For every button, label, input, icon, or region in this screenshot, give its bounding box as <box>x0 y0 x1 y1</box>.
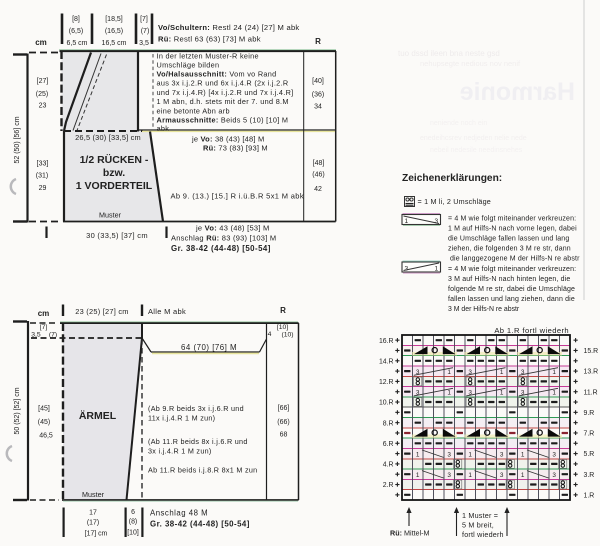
svg-text:[7]: [7] <box>140 16 148 23</box>
svg-text:Gr. 38-42 (44-48) [50-54]: Gr. 38-42 (44-48) [50-54] <box>150 520 250 529</box>
svg-text:(17): (17) <box>87 520 99 527</box>
svg-text:4: 4 <box>268 331 272 338</box>
svg-text:3: 3 <box>434 218 438 225</box>
svg-text:64 (70) [76] M: 64 (70) [76] M <box>181 343 237 352</box>
svg-text:12.R: 12.R <box>379 379 394 386</box>
svg-text:16,5 cm: 16,5 cm <box>102 40 127 47</box>
svg-text:3.R: 3.R <box>584 472 595 479</box>
svg-text:ziehen, die folgenden 3 M re s: ziehen, die folgenden 3 M re str, dann <box>448 246 571 253</box>
svg-text:(7): (7) <box>49 332 57 339</box>
svg-text:(6,5): (6,5) <box>69 28 83 35</box>
svg-text:(Ab 11.R beids 8x i.j.6.R und: (Ab 11.R beids 8x i.j.6.R und <box>148 437 248 446</box>
svg-text:= 4 M wie folgt miteinander ve: = 4 M wie folgt miteinander verkreuzen: <box>448 266 576 273</box>
svg-text:= 1 M li, 2 Umschläge: = 1 M li, 2 Umschläge <box>418 197 492 206</box>
svg-text:je Vo: 38 (43) [48] M: je Vo: 38 (43) [48] M <box>191 135 264 144</box>
svg-text:Rü: 73 (83) [93] M: Rü: 73 (83) [93] M <box>203 144 268 153</box>
svg-text:1: 1 <box>404 218 408 225</box>
svg-text:1: 1 <box>500 369 504 376</box>
svg-text:Muster: Muster <box>82 490 105 499</box>
svg-text:Umschläge bilden: Umschläge bilden <box>157 61 220 70</box>
svg-text:nebeil nedesile needinsnehes: nebeil nedesile needinsnehes <box>430 147 523 154</box>
svg-text:1 M auf Hilfs-N nach vorne leg: 1 M auf Hilfs-N nach vorne legen, dabei <box>448 226 577 233</box>
svg-text:6,5 cm: 6,5 cm <box>66 40 87 47</box>
svg-text:23 (25) [27] cm: 23 (25) [27] cm <box>75 307 128 316</box>
svg-text:aus 3x i.j.2.R und 6x i.j.4.R: aus 3x i.j.2.R und 6x i.j.4.R (2x i.j.2.… <box>157 79 289 88</box>
svg-text:(66): (66) <box>277 419 289 426</box>
svg-text:(8): (8) <box>129 519 137 526</box>
svg-text:3 M auf Hilfs-N nach hinten le: 3 M auf Hilfs-N nach hinten legen, die <box>448 276 570 283</box>
svg-text:2.R: 2.R <box>383 482 394 489</box>
svg-text:fortl wiederh: fortl wiederh <box>462 530 504 539</box>
svg-text:4.R: 4.R <box>383 462 394 469</box>
svg-text:1 VORDERTEIL: 1 VORDERTEIL <box>76 180 153 192</box>
svg-text:68: 68 <box>280 432 288 439</box>
svg-text:1: 1 <box>468 451 472 458</box>
svg-text:1: 1 <box>552 390 556 397</box>
svg-text:6.R: 6.R <box>383 441 394 448</box>
svg-text:[8]: [8] <box>72 16 80 23</box>
svg-text:3: 3 <box>404 265 408 272</box>
svg-text:[45]: [45] <box>38 406 50 413</box>
svg-text:3: 3 <box>552 472 556 479</box>
svg-text:Rü: Mittel-M: Rü: Mittel-M <box>390 529 430 538</box>
svg-text:Anschlag 48 M: Anschlag 48 M <box>150 509 208 518</box>
svg-text:In der letzten Muster-R keine: In der letzten Muster-R keine <box>157 52 259 61</box>
svg-text:[17] cm: [17] cm <box>85 531 108 538</box>
svg-text:1: 1 <box>521 472 525 479</box>
svg-text:Anschlag Rü: 83 (93) [103] M: Anschlag Rü: 83 (93) [103] M <box>171 233 276 242</box>
svg-text:und 7x i.j.4.R) [4x i.j.2.R un: und 7x i.j.4.R) [4x i.j.2.R und 7x i.j.4… <box>157 88 294 97</box>
svg-text:(Ab 9.R beids 3x i.j.6.R und: (Ab 9.R beids 3x i.j.6.R und <box>148 404 244 413</box>
svg-text:17: 17 <box>89 510 97 517</box>
svg-text:42: 42 <box>314 186 322 193</box>
svg-text:34: 34 <box>314 104 322 111</box>
svg-text:3: 3 <box>500 472 504 479</box>
svg-text:ÄRMEL: ÄRMEL <box>79 409 117 422</box>
svg-text:23: 23 <box>39 103 47 110</box>
svg-text:10.R: 10.R <box>379 400 394 407</box>
svg-text:11.R: 11.R <box>584 389 598 396</box>
svg-text:(16,5): (16,5) <box>105 28 123 35</box>
svg-text:die langgezogene M der Hilfs-N: die langgezogene M der Hilfs-N re abstr <box>450 256 580 263</box>
svg-text:1: 1 <box>521 451 525 458</box>
svg-text:1: 1 <box>447 369 451 376</box>
svg-text:3,5: 3,5 <box>31 332 41 339</box>
svg-text:Muster: Muster <box>99 211 122 220</box>
svg-text:1 Muster =: 1 Muster = <box>462 511 498 520</box>
svg-text:3: 3 <box>447 472 451 479</box>
svg-text:(7): (7) <box>141 28 150 35</box>
svg-text:(25): (25) <box>36 91 48 98</box>
svg-text:3x i.j.4.R 1 M zun): 3x i.j.4.R 1 M zun) <box>148 447 212 456</box>
svg-text:13.R: 13.R <box>584 369 599 376</box>
svg-text:[48]: [48] <box>313 160 325 167</box>
svg-text:1: 1 <box>416 451 420 458</box>
svg-text:Ab 9. (13.) [15.] R i.ü.B.R 5x: Ab 9. (13.) [15.] R i.ü.B.R 5x1 M abk <box>171 192 304 201</box>
svg-text:3: 3 <box>500 451 504 458</box>
svg-text:nehupsegte nedious nov nenif: nehupsegte nedious nov nenif <box>420 59 521 68</box>
svg-text:[66]: [66] <box>278 405 290 412</box>
svg-text:(10): (10) <box>281 332 293 339</box>
svg-text:cm: cm <box>38 309 50 318</box>
svg-text:= 4 M wie folgt miteinander ve: = 4 M wie folgt miteinander verkreuzen: <box>448 216 576 223</box>
svg-text:1: 1 <box>447 390 451 397</box>
svg-text:bzw.: bzw. <box>103 167 125 179</box>
svg-text:3,5: 3,5 <box>139 40 149 47</box>
svg-text:16.R: 16.R <box>379 338 394 345</box>
svg-text:5 M breit,: 5 M breit, <box>462 521 494 530</box>
svg-text:[10]: [10] <box>277 324 288 331</box>
svg-text:1.R: 1.R <box>584 492 595 499</box>
svg-text:die Umschläge fallen lassen un: die Umschläge fallen lassen und lang <box>448 236 569 243</box>
svg-text:[10]: [10] <box>127 530 139 537</box>
svg-text:3: 3 <box>447 451 451 458</box>
svg-text:Rü: Restl 63 (63) [73] M abk: Rü: Restl 63 (63) [73] M abk <box>158 35 261 44</box>
svg-text:Armausschnitte: Beids 5 (10) [: Armausschnitte: Beids 5 (10) [10] M <box>157 116 289 125</box>
svg-text:neniende noch ein: neniende noch ein <box>430 120 487 127</box>
svg-text:enedeihcsrev nedjeden nelie ne: enedeihcsrev nedjeden nelie nede <box>420 135 527 142</box>
svg-text:Ab 1.R fortl wiederh: Ab 1.R fortl wiederh <box>494 326 569 335</box>
svg-text:[27]: [27] <box>37 78 49 85</box>
svg-text:29: 29 <box>39 185 47 192</box>
svg-text:Harmonie: Harmonie <box>460 78 575 106</box>
svg-text:50 (52) [52] cm: 50 (52) [52] cm <box>14 387 21 434</box>
svg-text:1: 1 <box>468 472 472 479</box>
svg-text:eine betonte Abn arb: eine betonte Abn arb <box>157 106 230 115</box>
svg-text:14.R: 14.R <box>379 358 394 365</box>
svg-text:30 (33,5) [37] cm: 30 (33,5) [37] cm <box>86 231 148 240</box>
svg-text:8.R: 8.R <box>383 420 394 427</box>
svg-text:Vo/Schultern: Restl 24 (24) [2: Vo/Schultern: Restl 24 (24) [27] M abk <box>158 23 299 32</box>
svg-text:1: 1 <box>500 390 504 397</box>
svg-text:(46): (46) <box>312 172 324 179</box>
svg-text:3 M der Hilfs-N re abstr: 3 M der Hilfs-N re abstr <box>448 306 520 313</box>
svg-text:folgende M re str, dabei die U: folgende M re str, dabei die Umschläge <box>448 286 575 293</box>
svg-text:[7]: [7] <box>40 324 48 331</box>
svg-text:1 M abn, d.h. stets mit der 7.: 1 M abn, d.h. stets mit der 7. und 8.M <box>157 97 289 106</box>
svg-text:(45): (45) <box>38 419 50 426</box>
svg-text:11x i.j.4.R 1 M zun): 11x i.j.4.R 1 M zun) <box>148 414 215 423</box>
svg-text:1: 1 <box>552 369 556 376</box>
svg-text:Vo/Halsausschnitt: Vom vo Rand: Vo/Halsausschnitt: Vom vo Rand <box>157 70 277 79</box>
svg-text:3: 3 <box>552 451 556 458</box>
svg-text:Gr. 38-42 (44-48) [50-54]: Gr. 38-42 (44-48) [50-54] <box>171 244 271 253</box>
svg-text:5.R: 5.R <box>584 451 595 458</box>
svg-text:(36): (36) <box>312 92 324 99</box>
svg-text:Ab 11.R beids i.j.8.R 8x1 M zu: Ab 11.R beids i.j.8.R 8x1 M zun <box>148 466 257 475</box>
svg-text:9.R: 9.R <box>584 410 595 417</box>
svg-text:[18,5]: [18,5] <box>105 16 123 23</box>
svg-text:52 (50) [56] cm: 52 (50) [56] cm <box>14 116 21 163</box>
svg-text:1/2 RÜCKEN -: 1/2 RÜCKEN - <box>80 153 149 166</box>
svg-text:R: R <box>280 306 286 315</box>
svg-text:tuo dssd ileen bna neste gsd: tuo dssd ileen bna neste gsd <box>398 49 500 58</box>
svg-text:7.R: 7.R <box>584 431 595 438</box>
svg-text:je Vo: 43 (48) [53] M: je Vo: 43 (48) [53] M <box>195 224 269 233</box>
svg-text:Alle M abk: Alle M abk <box>148 307 186 316</box>
svg-text:26,5 (30) [33,5] cm: 26,5 (30) [33,5] cm <box>75 133 141 142</box>
svg-text:1: 1 <box>434 265 438 272</box>
svg-text:6: 6 <box>131 509 135 516</box>
svg-text:[40]: [40] <box>312 78 324 85</box>
svg-text:1: 1 <box>416 472 420 479</box>
svg-text:Zeichenerklärungen:: Zeichenerklärungen: <box>402 173 502 184</box>
svg-text:46,5: 46,5 <box>39 433 53 440</box>
svg-text:(31): (31) <box>36 173 48 180</box>
svg-text:[33]: [33] <box>37 161 49 168</box>
svg-text:cm: cm <box>35 38 47 47</box>
svg-text:15.R: 15.R <box>584 348 599 355</box>
svg-text:fallen lassen und lang ziehen,: fallen lassen und lang ziehen, dann die <box>448 296 575 303</box>
svg-text:R: R <box>315 37 321 46</box>
